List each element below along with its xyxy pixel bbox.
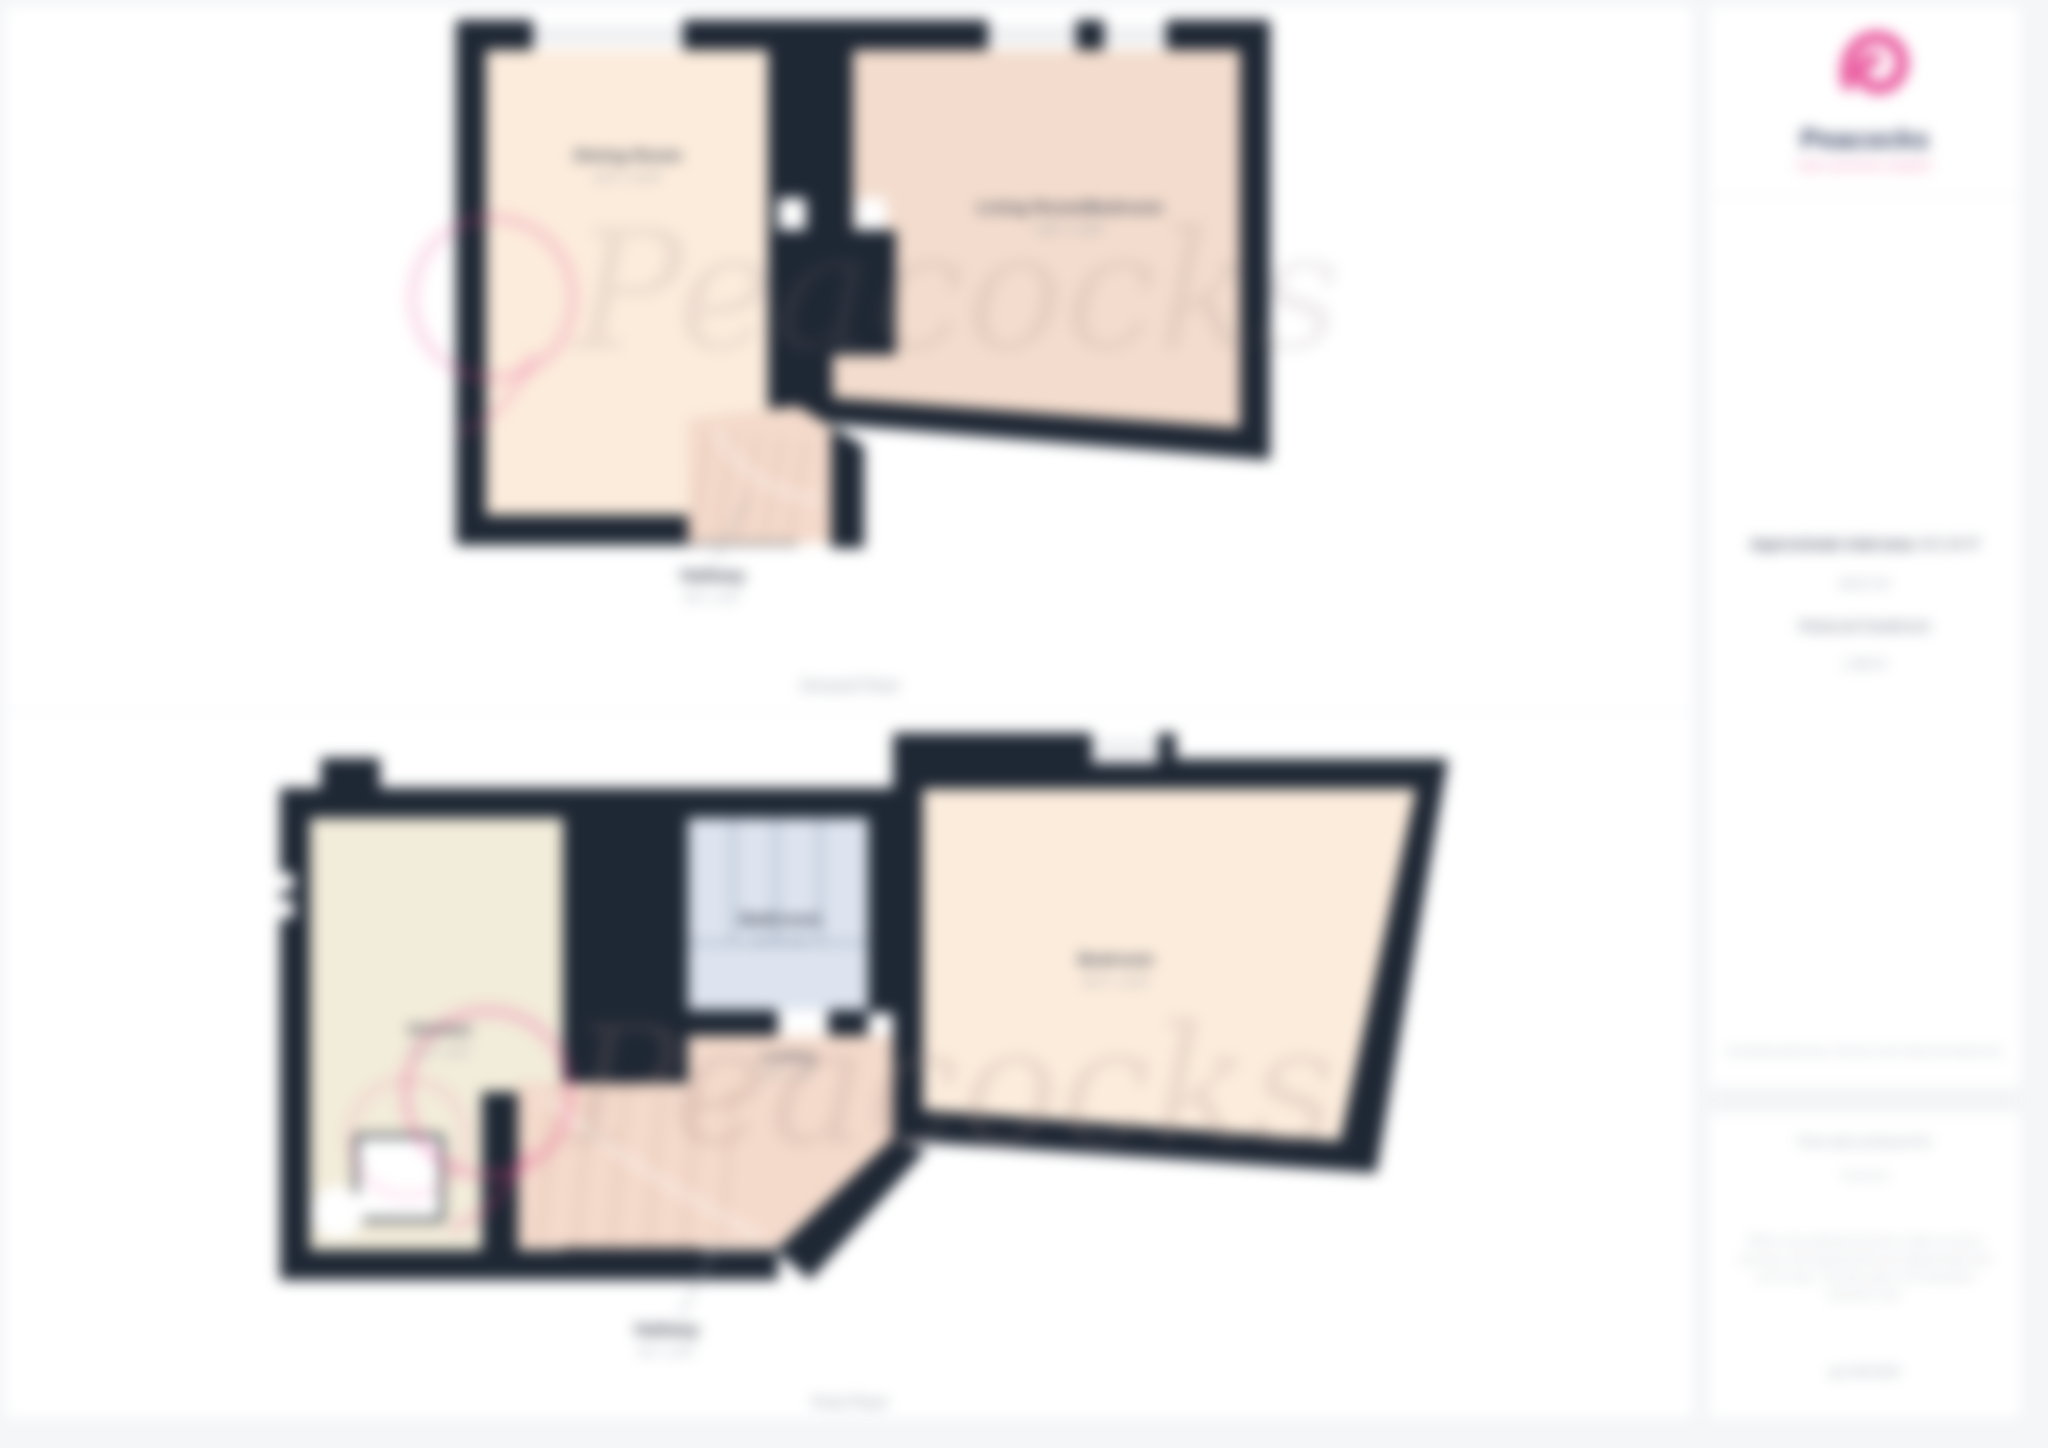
room-dims: 6'5" x 3'2" <box>681 590 746 605</box>
ground-floor-plan: Peacocks <box>413 20 1341 560</box>
info-sidebar: Peacocks THE ESTATE AGENT Approximate to… <box>1710 6 2020 1418</box>
room-name: Living Room/Bedroom <box>977 198 1163 218</box>
sidebar-divider <box>1710 1111 2020 1112</box>
room-name: Kitchen <box>408 1020 472 1040</box>
watermark-text-ground: Peacocks <box>570 195 1341 387</box>
room-dims: 11'3" x 8'9" <box>408 1044 472 1059</box>
room-label-landing: Landing 5'9" x 2'8" <box>760 1048 816 1082</box>
floor-plans-drawing: Peacocks <box>0 0 1707 1436</box>
room-label-bathroom: Bathroom 8'1" x 5'6" <box>740 910 822 949</box>
room-dims: 11'5" x 10'3" <box>574 170 682 185</box>
produced-for-label: Floor plan produced for <box>1710 1134 2020 1149</box>
room-dims: 6'1" x 3'0" <box>635 1344 700 1359</box>
sidebar-divider <box>1710 195 2020 196</box>
room-dims: 15'2" x 11'8" <box>1078 974 1154 989</box>
brand-swirl-icon <box>1847 37 1902 87</box>
room-label-kitchen: Kitchen 11'3" x 8'9" <box>408 1020 472 1059</box>
total-area-text: Approximate total area <box>1750 536 1913 553</box>
brand-name: Peacocks <box>1710 124 2020 155</box>
room-name: Dining Room <box>574 146 682 166</box>
generator-logo: giraffe360 <box>1710 1364 2020 1379</box>
floorplan-page: Peacocks <box>0 0 2048 1448</box>
headroom-label: Reduced headroom <box>1710 618 2020 635</box>
room-name: Bathroom <box>740 910 822 930</box>
disclaimer-text: While every attempt has been made to ens… <box>1739 1234 1991 1305</box>
room-dims: 5'9" x 2'8" <box>760 1068 816 1082</box>
room-label-hallway-ground: Hallway 6'5" x 3'2" <box>681 566 746 605</box>
room-label-bedroom: Bedroom 15'2" x 11'8" <box>1078 950 1154 989</box>
produced-for-value: Peacocks <box>1710 1170 2020 1182</box>
brand-tagline: THE ESTATE AGENT <box>1710 161 2020 173</box>
floor-title-first: First Floor <box>812 1393 889 1413</box>
headroom-value: 1.48 m² <box>1710 656 2020 671</box>
room-dims: 14'9" x 10'6" <box>977 222 1163 237</box>
total-area-label: Approximate total area 433.48 ft² <box>1710 536 2020 553</box>
sidebar-divider-band <box>1710 1089 2020 1111</box>
room-label-hallway-first: Hallway 6'1" x 3'0" <box>635 1320 700 1359</box>
excluding-note: Excluding balconies, terraces and reduce… <box>1710 1046 2020 1058</box>
room-label-living: Living Room/Bedroom 14'9" x 10'6" <box>977 198 1163 237</box>
total-area-ft: 433.48 ft² <box>1917 536 1980 553</box>
room-name: Hallway <box>681 566 746 586</box>
total-area-m: 40.27 m² <box>1710 576 2020 591</box>
watermark-text-first: Peacocks <box>565 990 1336 1182</box>
room-label-dining: Dining Room 11'5" x 10'3" <box>574 146 682 185</box>
room-name: Hallway <box>635 1320 700 1340</box>
room-name: Bedroom <box>1078 950 1154 970</box>
room-dims: 8'1" x 5'6" <box>740 934 822 949</box>
floor-title-ground: Ground Floor <box>800 676 900 696</box>
appliance-icon <box>312 1186 364 1238</box>
room-name: Landing <box>760 1048 816 1064</box>
